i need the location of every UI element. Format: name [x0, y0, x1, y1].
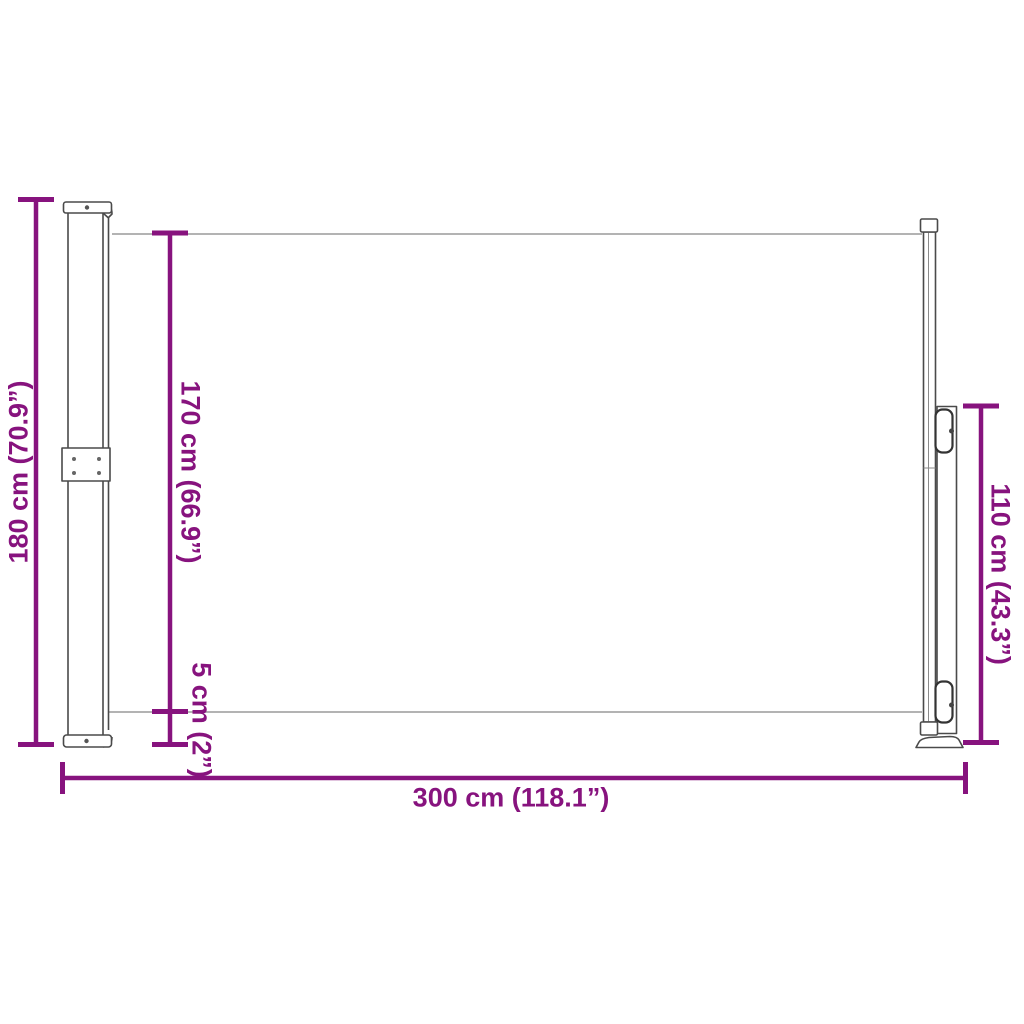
dimension-lines [18, 200, 999, 795]
pull-post-cap [921, 219, 938, 232]
cassette-bottom-screw [84, 739, 88, 743]
dim-label-total-height: 180 cm (70.9”) [6, 380, 33, 563]
awning-dimension-diagram: 180 cm (70.9”) 170 cm (66.9”) 5 cm (2”) … [0, 0, 1024, 1024]
pull-post [916, 219, 963, 748]
awning-line-drawing [0, 0, 1024, 1024]
foot-plate [916, 737, 963, 748]
clamp-handle-bottom [936, 682, 953, 723]
clamp-screw-bottom [949, 703, 954, 708]
clamp-screw-top [949, 429, 954, 434]
dim-label-fabric-height: 170 cm (66.9”) [177, 380, 204, 563]
bracket-screw [72, 471, 76, 475]
post-connector [921, 722, 938, 735]
bracket-screw [97, 457, 101, 461]
cassette-top-screw [85, 205, 89, 209]
dim-label-bottom-gap: 5 cm (2”) [188, 662, 215, 778]
dim-label-total-width: 300 cm (118.1”) [413, 785, 610, 812]
bracket-screw [72, 457, 76, 461]
fabric-screen [108, 234, 922, 712]
wall-bracket [62, 448, 110, 481]
dim-label-post-height: 110 cm (43.3”) [987, 483, 1014, 665]
pull-post-bar [924, 232, 936, 722]
cassette-post [62, 202, 112, 747]
bracket-screw [97, 471, 101, 475]
